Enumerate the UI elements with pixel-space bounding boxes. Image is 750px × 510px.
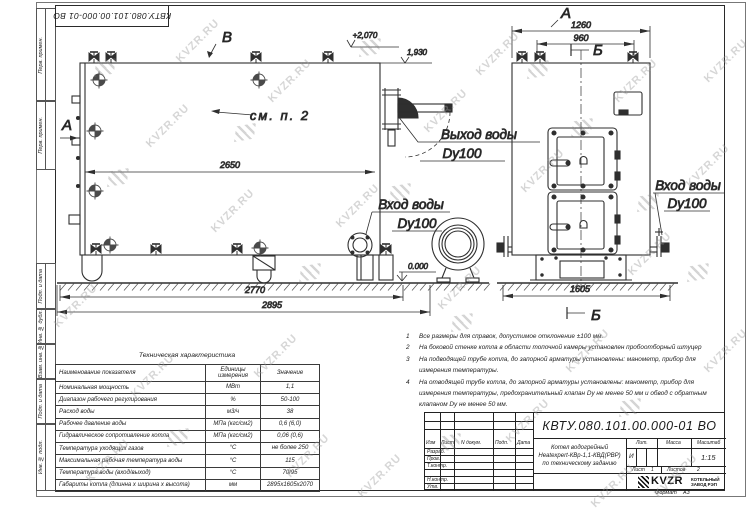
inlet-left-label-line2: Dy100 (397, 216, 437, 231)
note-item: 3На подводящей трубе котла, до запорной … (406, 354, 726, 377)
row-value: 50-100 (261, 394, 320, 406)
notes-list: 1Все размеры для справок, допустимое отк… (406, 331, 726, 411)
dim-1260: 1260 (571, 20, 591, 30)
format-label: Формат А3 (655, 490, 690, 496)
row-name: Температура уходящих газов (56, 443, 206, 455)
row-units: м3/ч (206, 406, 261, 418)
tb-description: Котел водогрейный Heatexpert-КВр-1,1-КВД… (533, 438, 626, 473)
tb-scale-value: 1:15 (701, 453, 716, 462)
tb-row-razrab: Разраб. (427, 449, 445, 455)
row-name: Максимальная рабочая температура воды (56, 455, 206, 467)
dim-2770: 2770 (244, 285, 265, 295)
tb-scale-label: Масштаб (697, 440, 720, 446)
format-word: Формат (655, 490, 677, 496)
row-units: °С (206, 455, 261, 467)
note-text: На отводящей трубе котла, до запорной ар… (419, 377, 726, 411)
table-row: Температура воды (вход/выход)°С70/95 (56, 467, 320, 479)
tb-row-tkontr: Т.контр. (427, 463, 447, 469)
kvzr-logo-text: KVZR (651, 475, 683, 487)
outlet-label-line1: Выход воды (441, 127, 517, 142)
drawing-sheet: { "watermark": { "text": "KVZR.RU" }, "m… (0, 0, 750, 500)
view-label-v: В (222, 29, 232, 46)
section-label-b-top: Б (593, 42, 603, 59)
inlet-left-label-line1: Вход воды (378, 197, 444, 212)
format-value: А3 (683, 490, 690, 496)
tech-col-name: Наименование показателя (56, 365, 206, 382)
kvzr-company-name: КОТЕЛЬНЫЙ ЗАВОД РЭП (691, 477, 720, 488)
row-name: Габариты котла (длинна х ширина х высота… (56, 479, 206, 491)
tb-sheets-value: 2 (697, 467, 700, 473)
kvzr-company-line2: ЗАВОД РЭП (691, 482, 720, 487)
row-value: 70/95 (261, 467, 320, 479)
tb-sheet-label: Лист (632, 467, 645, 473)
row-units: МПа (кгс/см2) (206, 418, 261, 430)
table-row: Гидравлическое сопротивление котлаМПа (к… (56, 430, 320, 442)
table-row: Максимальная рабочая температура воды°С1… (56, 455, 320, 467)
dim-2650: 2650 (219, 160, 240, 170)
dimensions: 2650 2770 2895 1260 960 1605 +2,070 (57, 20, 670, 316)
note-text: Все размеры для справок, допустимое откл… (419, 331, 726, 342)
corner-doc-number-stamp: КВТУ.080.101.00.000-01 ВО (55, 5, 169, 27)
row-name: Рабочее давление воды (56, 418, 206, 430)
table-row: Рабочее давление водыМПа (кгс/см2)0,6 (6… (56, 418, 320, 430)
dim-2895: 2895 (261, 300, 283, 310)
note-number: 3 (406, 354, 419, 377)
inlet-right-label-line2: Dy100 (667, 196, 707, 211)
tb-header-izm: Изм (426, 440, 435, 446)
elevation-top: +2,070 (353, 31, 378, 40)
tb-doc-number: КВТУ.080.101.00.000-01 ВО (533, 413, 726, 438)
tb-row-prov: Пров. (427, 456, 440, 462)
row-value: 115 (261, 455, 320, 467)
tb-sheets-label: Листов (667, 467, 685, 473)
tb-header-podp: Подп. (495, 440, 508, 446)
tb-description-line3: по техническому заданию (542, 460, 616, 468)
elevation-mid: 1,930 (407, 48, 428, 57)
table-row: Расход водым3/ч38 (56, 406, 320, 418)
tech-table-title: Техническая характеристика (55, 352, 319, 364)
tb-lit-label: Лит. (636, 440, 648, 446)
row-value: 2895х1605х2070 (261, 479, 320, 491)
outlet-label-line2: Dy100 (442, 146, 482, 161)
row-units: % (206, 394, 261, 406)
front-view (497, 50, 669, 292)
note-number: 4 (406, 377, 419, 411)
annotations: см. п. 2 Выход воды Dy100 Вход воды Dy10… (60, 5, 724, 324)
row-value: 1,1 (261, 382, 320, 394)
section-label-b-bottom: Б (591, 307, 601, 324)
tech-col-units: Единицы измерения (206, 365, 261, 382)
inlet-right-label-line1: Вход воды (655, 178, 721, 193)
note-number: 2 (406, 342, 419, 353)
row-units: мм (206, 479, 261, 491)
note-number: 1 (406, 331, 419, 342)
row-name: Номинальная мощность (56, 382, 206, 394)
elevation-zero: 0.000 (408, 262, 429, 271)
tb-row-nkontr: Н.контр. (427, 477, 448, 483)
table-row: Номинальная мощностьМВт1,1 (56, 382, 320, 394)
row-value: 0,06 (0,6) (261, 430, 320, 442)
tb-header-list: Лист (441, 440, 454, 446)
row-name: Температура воды (вход/выход) (56, 467, 206, 479)
row-units: °С (206, 443, 261, 455)
row-units: °С (206, 467, 261, 479)
tb-description-line2: Heatexpert-КВр-1,1-КВД(РВР) (538, 452, 620, 460)
row-name: Расход воды (56, 406, 206, 418)
row-units: МПа (кгс/см2) (206, 430, 261, 442)
row-units: МВт (206, 382, 261, 394)
tb-row-utv: Утв. (427, 484, 438, 490)
side-view (69, 52, 484, 283)
kvzr-logo-icon (638, 476, 649, 488)
note-item: 2На боковой стенке котла в области топоч… (406, 342, 726, 353)
table-row: Температура уходящих газов°Сне более 250 (56, 443, 320, 455)
dim-1605: 1605 (570, 284, 591, 294)
row-value: 0,6 (6,0) (261, 418, 320, 430)
see-note-label: см. п. 2 (250, 108, 310, 123)
title-block: Изм Лист N докум. Подп. Дата Разраб. Про… (424, 412, 725, 490)
note-text: На подводящей трубе котла, до запорной а… (419, 354, 726, 377)
tech-characteristics: Техническая характеристика Наименование … (55, 352, 319, 492)
note-item: 1Все размеры для справок, допустимое отк… (406, 331, 726, 342)
tb-header-data: Дата (517, 440, 530, 446)
row-name: Диапазон рабочего регулирования (56, 394, 206, 406)
note-item: 4На отводящей трубе котла, до запорной а… (406, 377, 726, 411)
table-row: Диапазон рабочего регулирования%50-100 (56, 394, 320, 406)
row-value: 38 (261, 406, 320, 418)
tech-table: Наименование показателя Единицы измерени… (55, 364, 320, 492)
note-text: На боковой стенке котла в области топочн… (419, 342, 726, 353)
tb-lit-value: И (629, 453, 634, 460)
dim-960: 960 (573, 33, 588, 43)
row-name: Гидравлическое сопротивление котла (56, 430, 206, 442)
view-label-a-side: А (61, 117, 72, 134)
corner-doc-number: КВТУ.080.101.00.000-01 ВО (53, 11, 171, 21)
tb-sheet-value: 1 (651, 467, 654, 473)
tb-mass-label: Масса (666, 440, 681, 446)
tech-col-value: Значение (261, 365, 320, 382)
row-value: не более 250 (261, 443, 320, 455)
view-label-a-front: А (560, 5, 571, 22)
tech-table-header-row: Наименование показателя Единицы измерени… (56, 365, 320, 382)
table-row: Габариты котла (длинна х ширина х высота… (56, 479, 320, 491)
tb-description-line1: Котел водогрейный (551, 444, 608, 452)
tb-header-ndokum: N докум. (461, 440, 481, 446)
